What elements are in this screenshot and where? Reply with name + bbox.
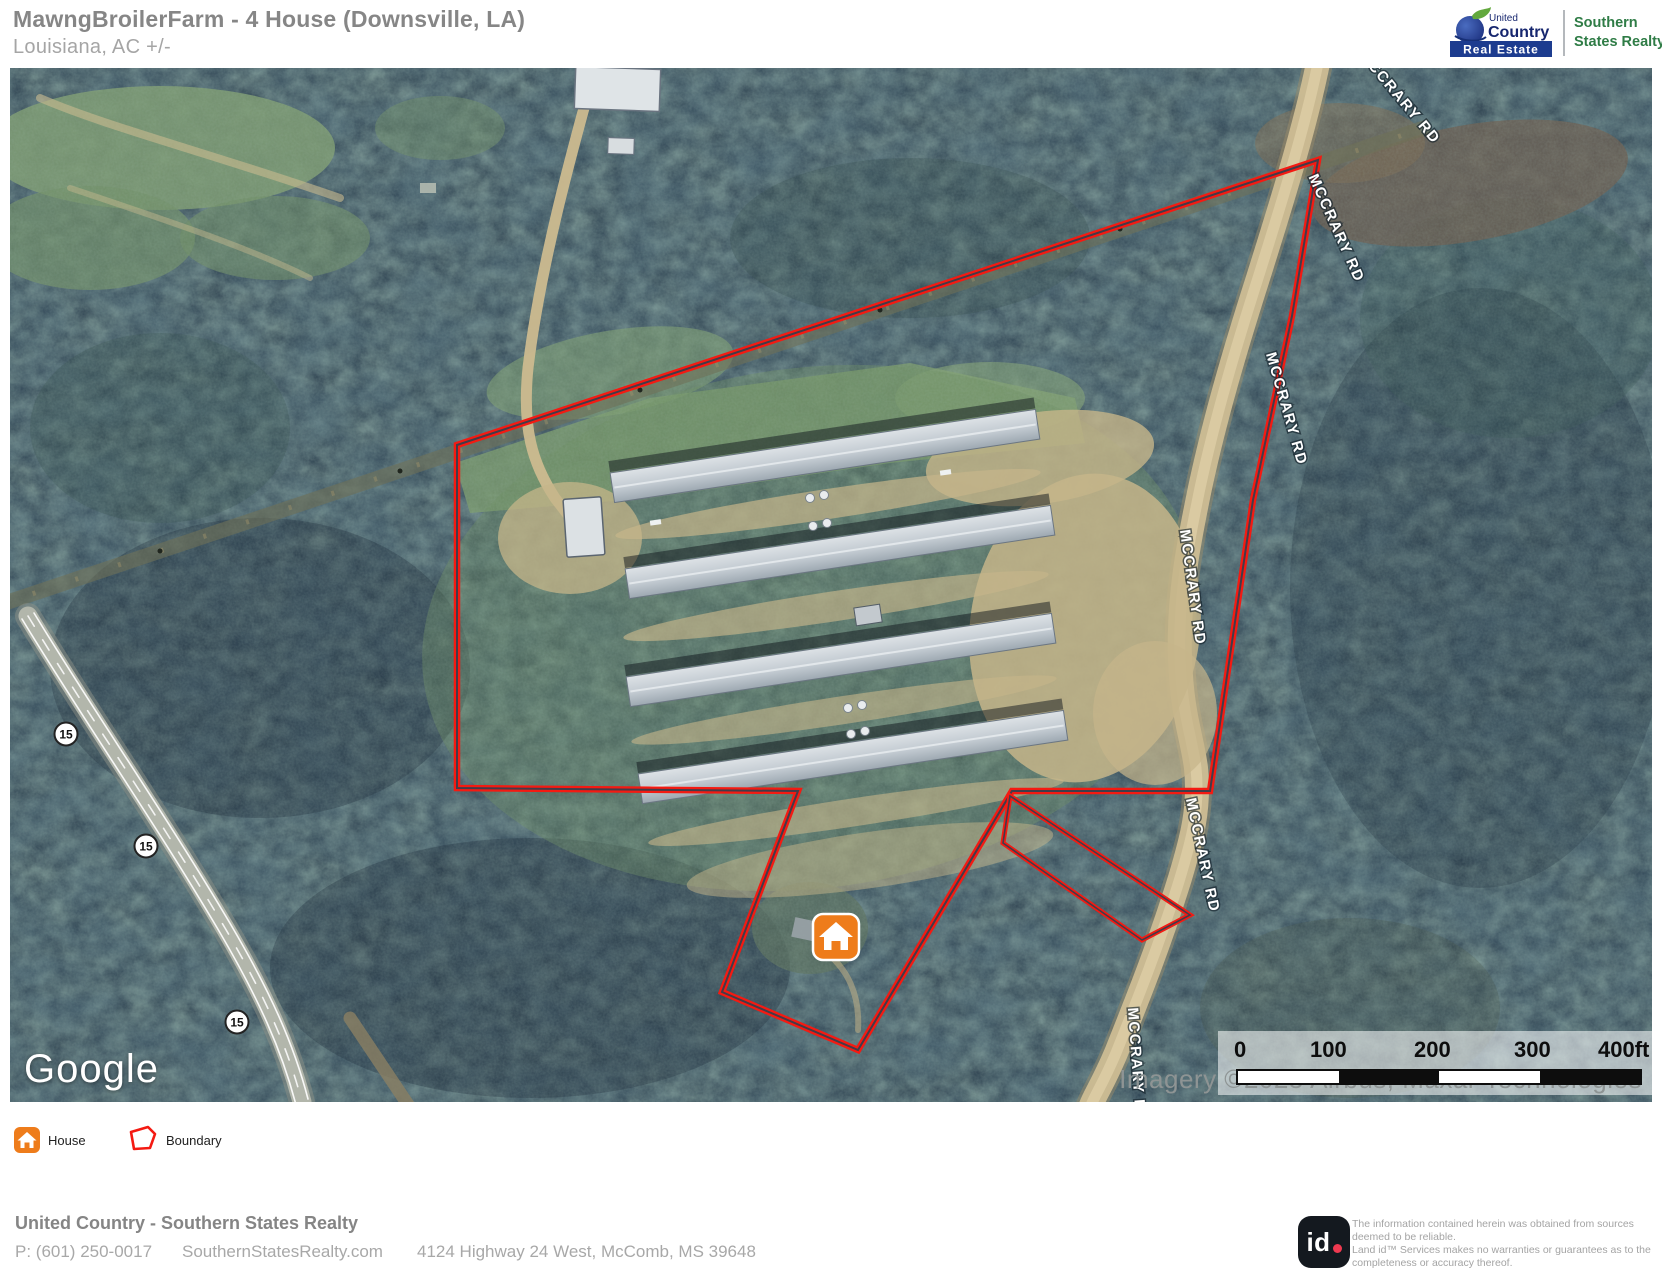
- route-15-shield: 15: [226, 1011, 249, 1034]
- legend-boundary-icon: [127, 1124, 159, 1154]
- brand-logos: United Country Real Estate Southern Stat…: [1450, 4, 1662, 60]
- footer-website[interactable]: SouthernStatesRealty.com: [182, 1242, 383, 1262]
- google-logo[interactable]: Google: [24, 1047, 159, 1092]
- footer-address: 4124 Highway 24 West, McComb, MS 39648: [417, 1242, 756, 1262]
- svg-text:15: 15: [139, 840, 153, 854]
- disclaimer-line-2: Land id™ Services makes no warranties or…: [1352, 1244, 1658, 1270]
- legend-house-icon: [13, 1126, 41, 1154]
- scale-tick-200: 200: [1414, 1037, 1451, 1063]
- legend-house-label: House: [48, 1133, 86, 1148]
- disclaimer-text: The information contained herein was obt…: [1352, 1218, 1658, 1271]
- route-15-shield: 15: [135, 835, 158, 858]
- satellite-map[interactable]: MCCRARY RD MCCRARY RD MCCRARY RD MCCRARY…: [10, 68, 1652, 1102]
- scale-bar: 0 100 200 300 400ft: [1218, 1031, 1652, 1095]
- land-id-logo-text: id: [1306, 1227, 1330, 1258]
- brand-line2: States Realty: [1574, 34, 1662, 50]
- map-canvas: MCCRARY RD MCCRARY RD MCCRARY RD MCCRARY…: [10, 68, 1652, 1102]
- scale-tick-300: 300: [1514, 1037, 1551, 1063]
- southern-states-realty-logo: Southern States Realty: [1574, 15, 1662, 50]
- page-title: MawngBroilerFarm - 4 House (Downsville, …: [13, 6, 525, 33]
- house-marker[interactable]: [813, 914, 859, 960]
- scale-tick-400ft: 400ft: [1598, 1037, 1649, 1063]
- land-id-logo-dot: [1333, 1244, 1342, 1253]
- page-subtitle: Louisiana, AC +/-: [13, 36, 171, 59]
- footer-phone: P: (601) 250-0017: [15, 1242, 152, 1262]
- brand-real-estate-text: Real Estate: [1463, 43, 1539, 57]
- footer-company-name: United Country - Southern States Realty: [15, 1213, 358, 1234]
- scale-tick-100: 100: [1310, 1037, 1347, 1063]
- brand-line1: Southern: [1574, 15, 1638, 31]
- listing-map-page: MawngBroilerFarm - 4 House (Downsville, …: [0, 0, 1662, 1275]
- brand-country-text: Country: [1488, 24, 1549, 41]
- land-id-logo: id: [1298, 1216, 1350, 1268]
- scale-bar-segments: [1236, 1069, 1642, 1085]
- scale-tick-0: 0: [1234, 1037, 1246, 1063]
- legend-boundary-label: Boundary: [166, 1133, 222, 1148]
- svg-text:15: 15: [59, 728, 73, 742]
- route-15-shield: 15: [55, 723, 78, 746]
- brand-united-text: United: [1489, 13, 1518, 24]
- disclaimer-line-1: The information contained herein was obt…: [1352, 1218, 1658, 1244]
- united-country-logo: United Country Real Estate: [1450, 7, 1552, 57]
- svg-text:15: 15: [230, 1016, 244, 1030]
